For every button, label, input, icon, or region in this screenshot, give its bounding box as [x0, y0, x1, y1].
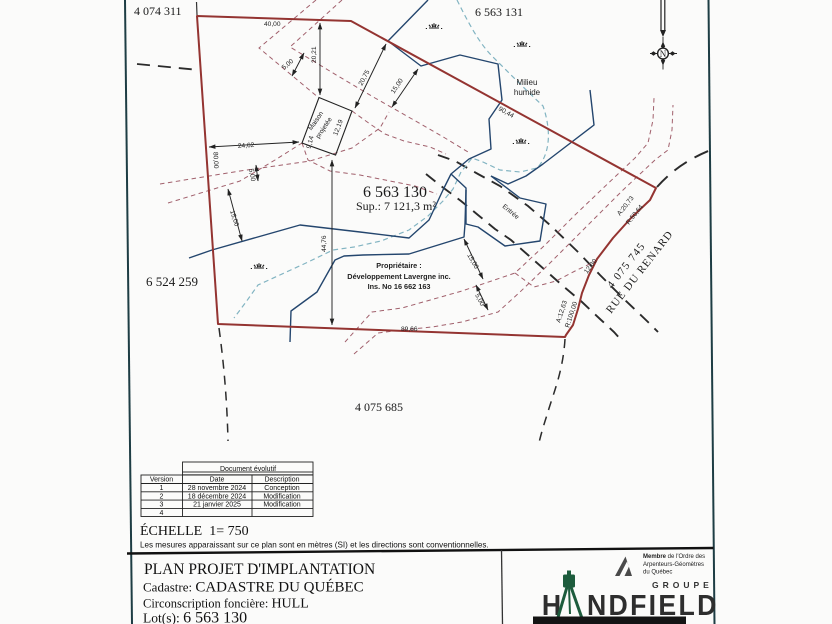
svg-text:4: 4 [160, 510, 164, 517]
svg-text:humide: humide [514, 88, 541, 97]
svg-text:ÉCHELLE 1= 750: ÉCHELLE 1= 750 [140, 522, 249, 539]
svg-text:15,00: 15,00 [390, 77, 405, 95]
svg-text:18 décembre 2024: 18 décembre 2024 [188, 493, 246, 500]
svg-text:Membre de l'Ordre des: Membre de l'Ordre des [643, 554, 705, 560]
svg-text:Modification: Modification [263, 502, 300, 509]
svg-text:Lot(s): 6 563 130: Lot(s): 6 563 130 [143, 610, 247, 624]
svg-text:80,00: 80,00 [212, 152, 220, 169]
svg-text:Sup.: 7 121,3 m²: Sup.: 7 121,3 m² [356, 199, 436, 213]
svg-text:6 563 131: 6 563 131 [475, 5, 523, 19]
svg-text:Conception: Conception [264, 485, 300, 492]
svg-text:Version: Version [150, 477, 173, 484]
svg-text:Développement Lavergne inc.: Développement Lavergne inc. [347, 272, 450, 281]
svg-text:du Québec: du Québec [643, 570, 672, 576]
svg-text:5,00: 5,00 [281, 58, 296, 72]
svg-text:15,00: 15,00 [228, 209, 240, 227]
svg-text:Arpenteurs-Géomètres: Arpenteurs-Géomètres [643, 562, 704, 568]
svg-text:28 novembre 2024: 28 novembre 2024 [188, 485, 246, 492]
svg-text:Modification: Modification [263, 493, 300, 500]
svg-text:21 janvier 2025: 21 janvier 2025 [193, 502, 241, 509]
svg-text:20,21: 20,21 [311, 46, 318, 63]
svg-text:15,00: 15,00 [465, 253, 479, 271]
svg-text:6 524 259: 6 524 259 [146, 274, 198, 289]
svg-text:44,76: 44,76 [321, 235, 328, 252]
svg-text:24,62: 24,62 [238, 142, 255, 150]
svg-text:Propriétaire :: Propriétaire : [376, 261, 421, 270]
svg-text:4 074 311: 4 074 311 [134, 4, 182, 18]
svg-text:1: 1 [160, 485, 164, 492]
svg-text:NDFIELD: NDFIELD [587, 589, 719, 621]
svg-text:Description: Description [264, 477, 299, 484]
svg-text:90,44: 90,44 [497, 106, 515, 120]
svg-text:89,66: 89,66 [401, 326, 418, 333]
svg-text:Cadastre: CADASTRE DU QUÉBEC: Cadastre: CADASTRE DU QUÉBEC [143, 579, 364, 596]
svg-text:5,00: 5,00 [473, 293, 485, 308]
svg-text:4 075 685: 4 075 685 [355, 400, 403, 414]
svg-text:Milieu: Milieu [517, 78, 538, 87]
svg-text:2: 2 [160, 493, 164, 500]
svg-text:5,00: 5,00 [247, 168, 256, 182]
svg-text:PLAN PROJET D'IMPLANTATION: PLAN PROJET D'IMPLANTATION [144, 561, 375, 578]
svg-text:40,00: 40,00 [264, 21, 281, 28]
svg-text:Document évolutif: Document évolutif [220, 466, 276, 473]
svg-text:Les mesures apparaissant sur c: Les mesures apparaissant sur ce plan son… [140, 541, 489, 550]
svg-text:3: 3 [160, 502, 164, 509]
svg-text:Date: Date [210, 477, 225, 484]
svg-text:N: N [660, 49, 667, 59]
svg-text:Ins. No 16 662 163: Ins. No 16 662 163 [368, 282, 431, 291]
svg-text:Entrée: Entrée [501, 203, 521, 221]
